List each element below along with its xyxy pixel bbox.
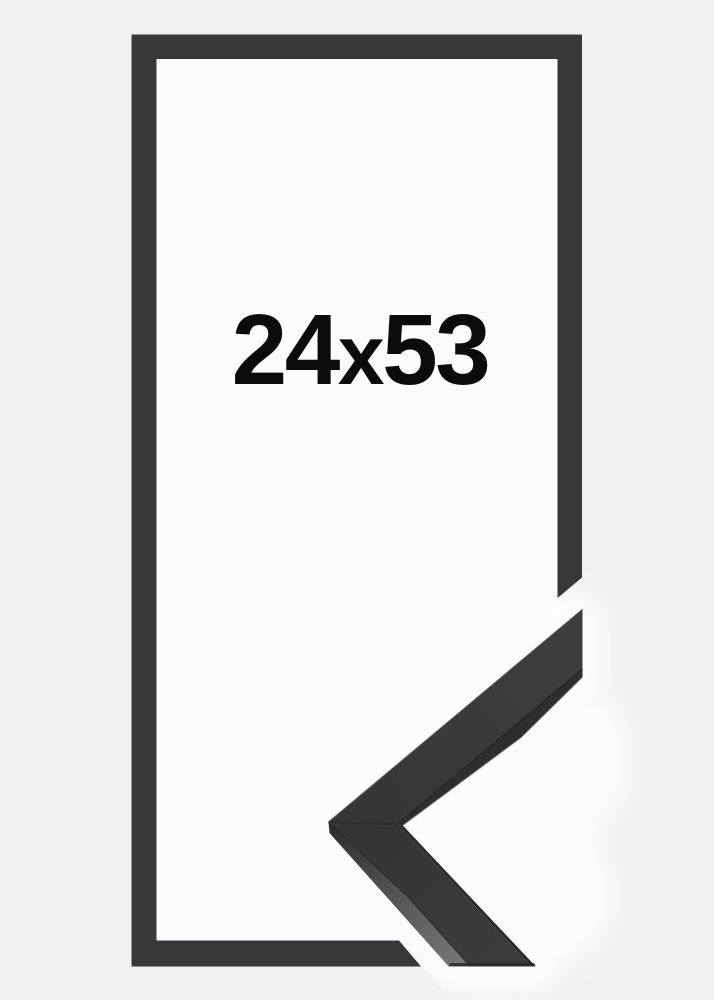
svg-text:24x53: 24x53 — [232, 294, 489, 406]
